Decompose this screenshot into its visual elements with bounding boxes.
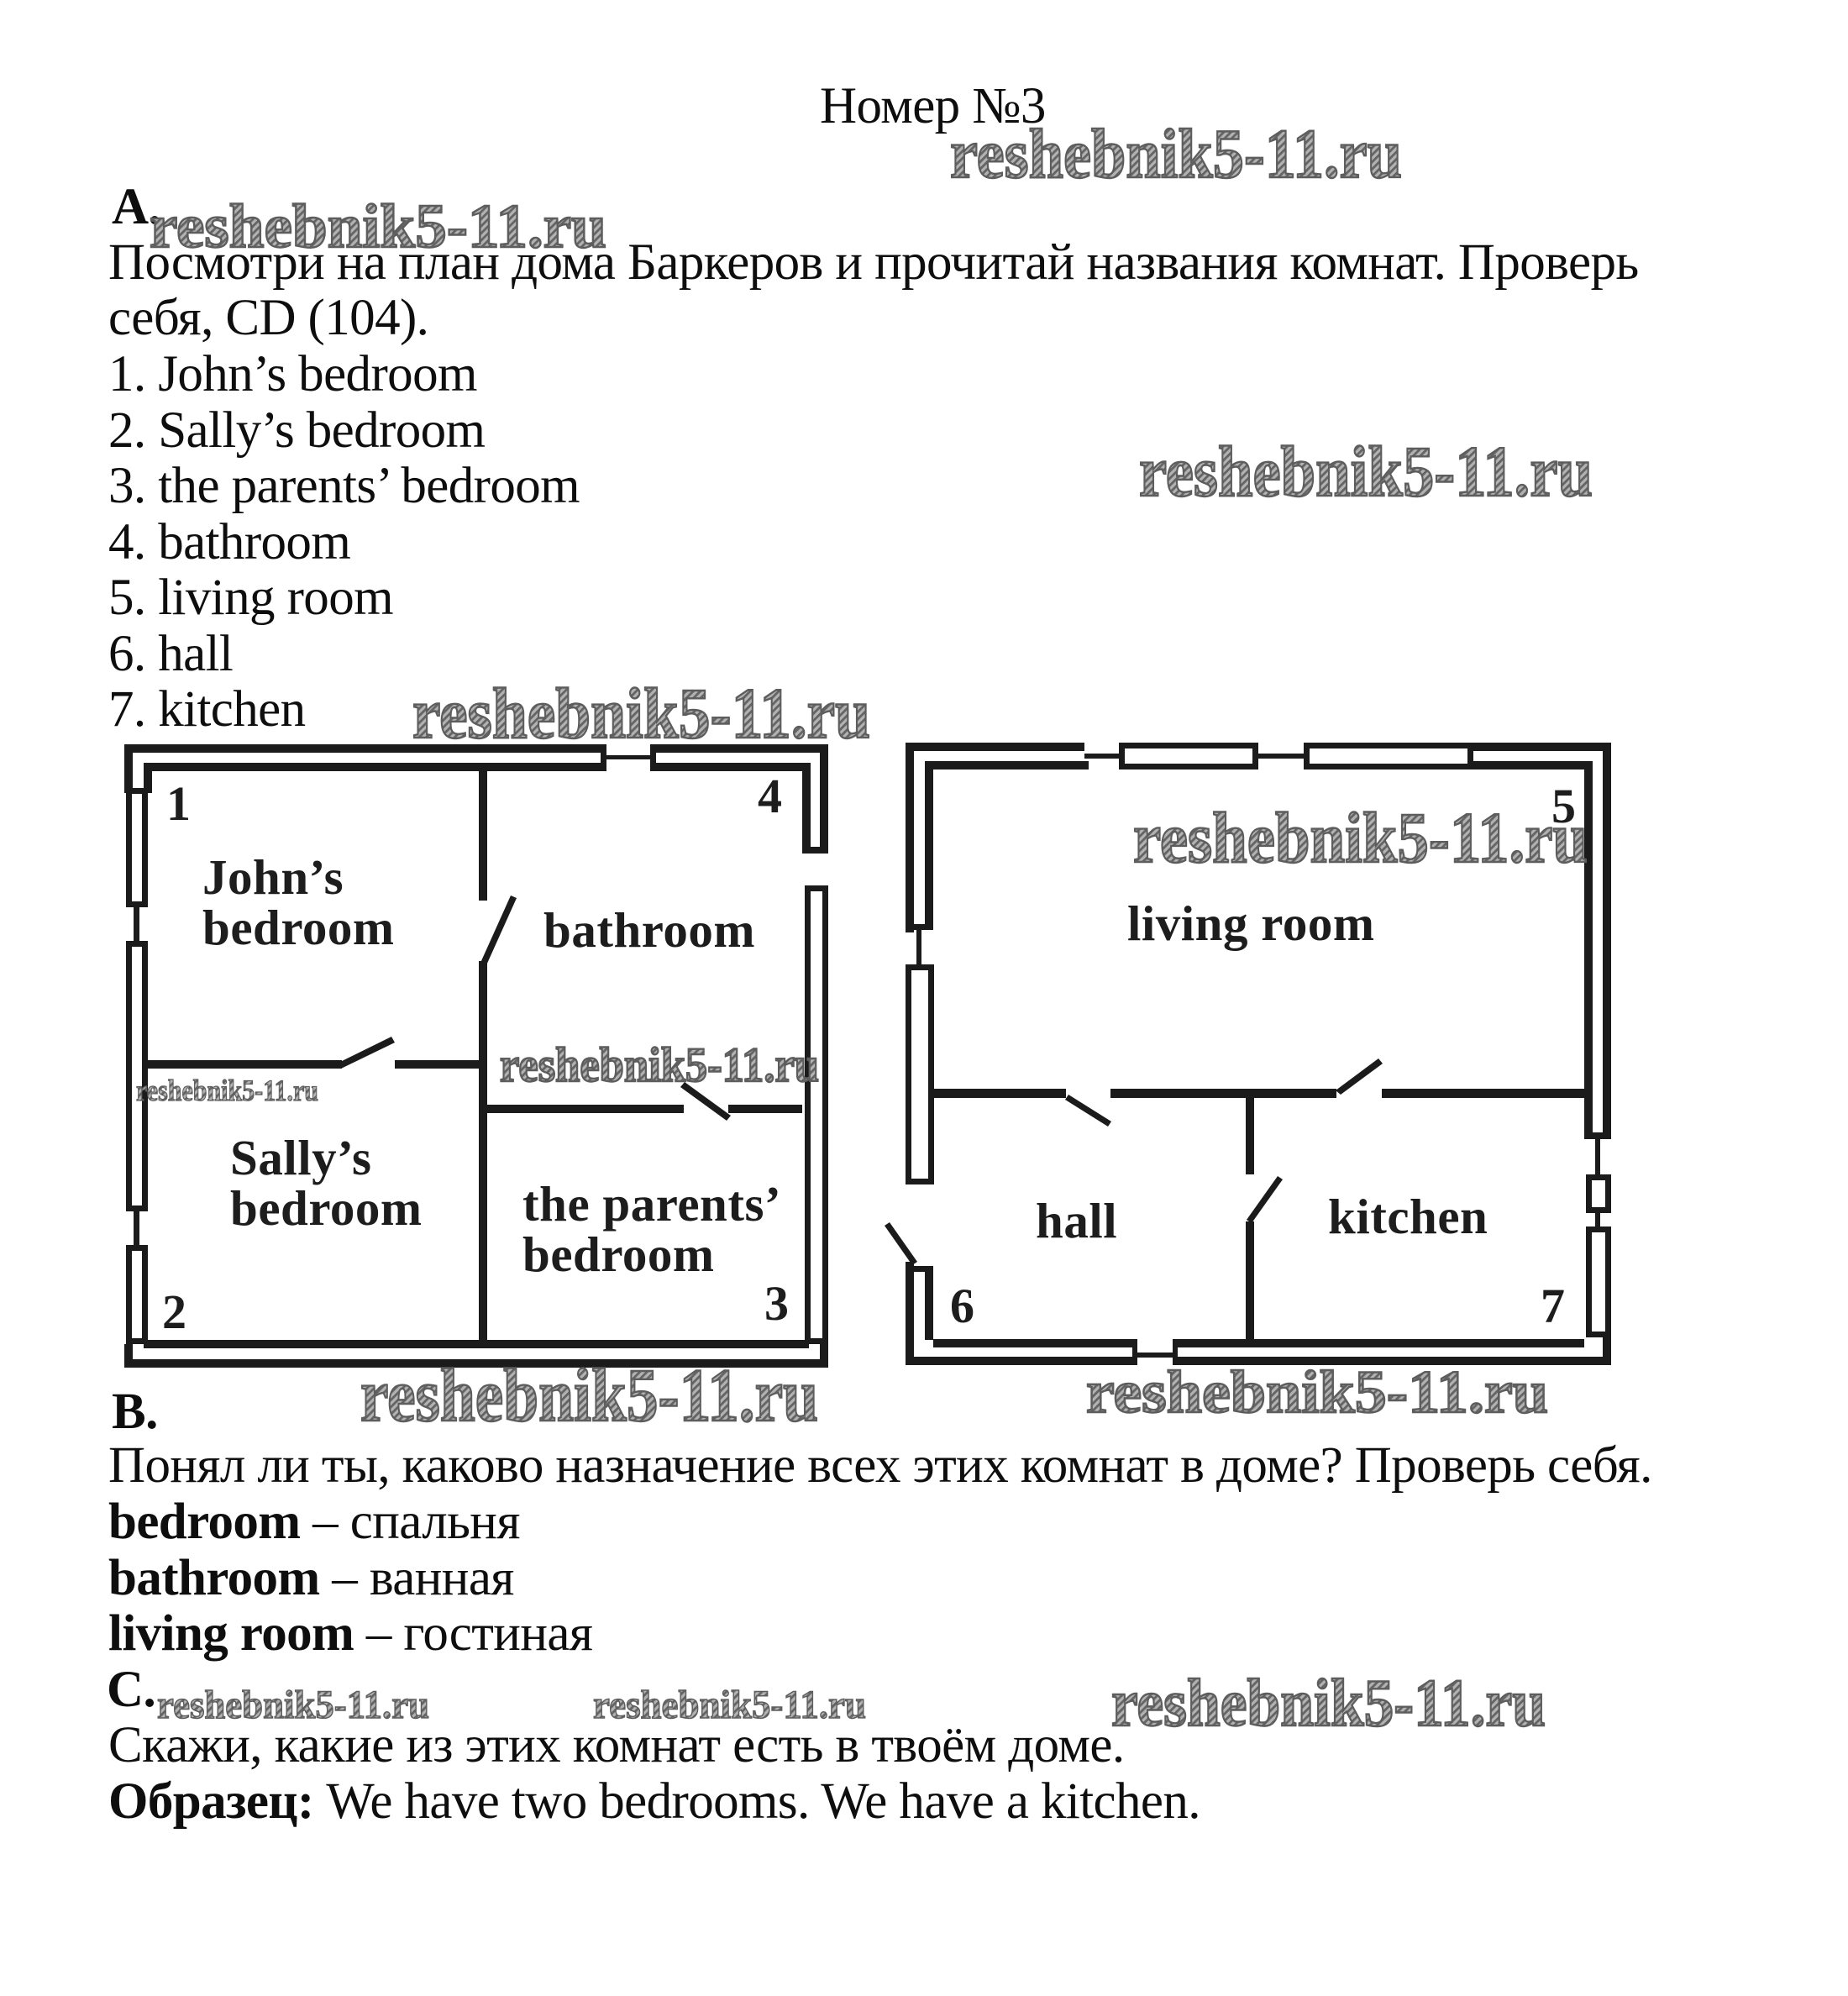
svg-text:reshebnik5-11.ru: reshebnik5-11.ru <box>1133 797 1588 878</box>
svg-text:reshebnik5-11.ru: reshebnik5-11.ru <box>593 1683 866 1727</box>
svg-text:reshebnik5-11.ru: reshebnik5-11.ru <box>412 673 870 754</box>
svg-text:reshebnik5-11.ru: reshebnik5-11.ru <box>1111 1667 1546 1741</box>
svg-text:reshebnik5-11.ru: reshebnik5-11.ru <box>950 115 1402 193</box>
svg-text:reshebnik5-11.ru: reshebnik5-11.ru <box>150 192 606 261</box>
svg-text:reshebnik5-11.ru: reshebnik5-11.ru <box>360 1354 818 1437</box>
svg-text:reshebnik5-11.ru: reshebnik5-11.ru <box>1086 1358 1548 1426</box>
svg-text:reshebnik5-11.ru: reshebnik5-11.ru <box>157 1683 429 1727</box>
svg-text:reshebnik5-11.ru: reshebnik5-11.ru <box>500 1037 819 1092</box>
svg-text:reshebnik5-11.ru: reshebnik5-11.ru <box>1139 431 1593 512</box>
svg-text:reshebnik5-11.ru: reshebnik5-11.ru <box>136 1074 318 1107</box>
